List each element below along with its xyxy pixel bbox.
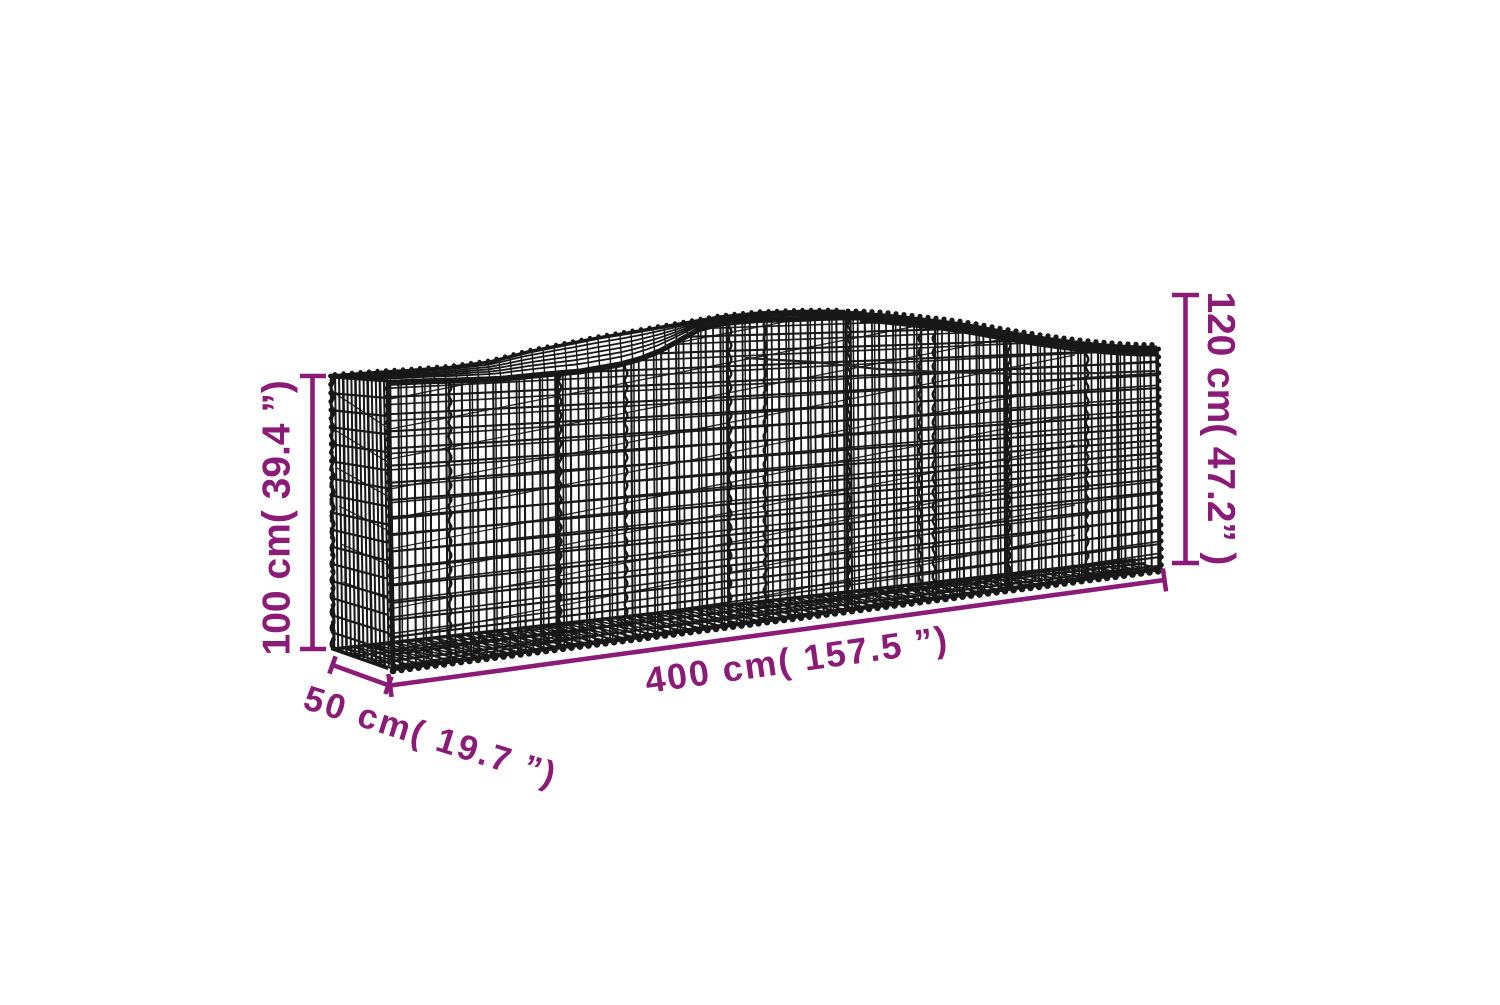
svg-text:100 cm( 39.4 ”): 100 cm( 39.4 ”) bbox=[256, 380, 299, 655]
svg-text:120 cm( 47.2” ): 120 cm( 47.2” ) bbox=[1199, 292, 1242, 566]
